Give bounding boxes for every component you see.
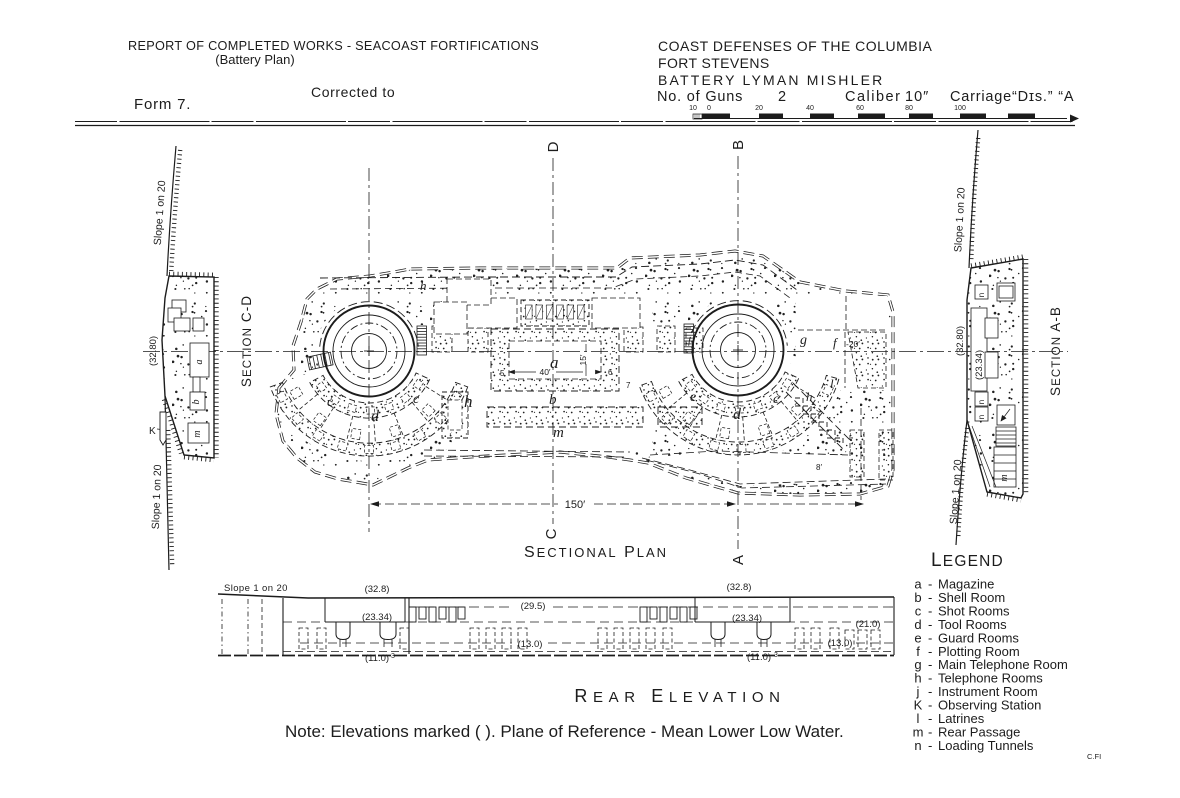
svg-text:l: l (830, 376, 834, 391)
svg-text:b: b (191, 400, 202, 405)
svg-text:-: - (928, 738, 932, 753)
svg-text:c: c (773, 392, 780, 407)
svg-text:(Battery Plan): (Battery Plan) (215, 52, 294, 67)
svg-text:d: d (733, 406, 742, 423)
svg-text:No. of Guns: No. of Guns (657, 89, 743, 105)
svg-text:Loading Tunnels: Loading Tunnels (938, 738, 1034, 753)
svg-text:10: 10 (689, 105, 697, 112)
svg-text:Corrected to: Corrected to (311, 84, 395, 100)
svg-text:n: n (977, 415, 986, 419)
svg-text:(11.0): (11.0) (747, 652, 771, 663)
svg-text:10″: 10″ (905, 89, 929, 105)
svg-text:(23.34): (23.34) (362, 612, 392, 623)
svg-text:-20′: -20′ (846, 339, 860, 349)
svg-text:5: 5 (500, 369, 505, 378)
svg-text:(32.8): (32.8) (727, 582, 752, 593)
svg-text:D: D (545, 141, 562, 152)
svg-text:Slope 1 on 20: Slope 1 on 20 (952, 187, 967, 253)
svg-text:n: n (977, 293, 986, 297)
svg-text:REPORT OF COMPLETED WORKS - SE: REPORT OF COMPLETED WORKS - SEACOAST FOR… (128, 39, 539, 53)
svg-text:6: 6 (608, 368, 613, 377)
svg-text:0: 0 (707, 105, 711, 112)
svg-text:80: 80 (905, 105, 913, 112)
svg-text:K: K (149, 426, 156, 437)
svg-text:SECTION C-D: SECTION C-D (239, 295, 254, 387)
svg-text:150′: 150′ (565, 499, 585, 511)
svg-text:Carriage“Dɪs.” “A: Carriage“Dɪs.” “A (950, 89, 1074, 105)
svg-text:7: 7 (626, 381, 631, 390)
svg-text:2: 2 (778, 89, 786, 105)
svg-text:40: 40 (806, 105, 814, 112)
svg-text:(32.8): (32.8) (365, 584, 390, 595)
svg-text:(21.0): (21.0) (856, 619, 881, 630)
svg-text:m: m (553, 425, 564, 441)
svg-text:a: a (550, 353, 559, 372)
svg-text:REAR ELEVATION: REAR ELEVATION (574, 686, 785, 706)
svg-text:(32.80): (32.80) (148, 336, 159, 366)
svg-text:n: n (914, 738, 921, 753)
svg-text:A: A (730, 555, 747, 565)
svg-text:LEGEND: LEGEND (931, 550, 1004, 571)
svg-text:60: 60 (856, 105, 864, 112)
svg-text:(23.34): (23.34) (974, 350, 985, 380)
svg-text:g: g (800, 333, 807, 348)
svg-text:C.FI: C.FI (1087, 752, 1101, 761)
svg-text:SECTION A-B: SECTION A-B (1048, 306, 1063, 396)
svg-text:n: n (977, 400, 986, 404)
svg-text:FORT STEVENS: FORT STEVENS (658, 55, 770, 71)
svg-text:B: B (730, 140, 747, 150)
svg-text:40′: 40′ (539, 367, 550, 377)
svg-text:(13.0): (13.0) (828, 638, 853, 649)
svg-text:c: c (413, 392, 420, 407)
svg-text:3: 3 (774, 652, 778, 659)
svg-text:(11.0): (11.0) (365, 653, 389, 664)
svg-text:Slope 1 on 20: Slope 1 on 20 (152, 180, 169, 246)
svg-text:COAST DEFENSES OF THE COLUMBIA: COAST DEFENSES OF THE COLUMBIA (658, 38, 932, 54)
svg-text:BATTERY LYMAN MISHLER: BATTERY LYMAN MISHLER (658, 72, 884, 88)
svg-text:3: 3 (391, 653, 395, 660)
svg-text:Caliber: Caliber (845, 89, 901, 105)
svg-text:Slope 1 on 20: Slope 1 on 20 (224, 583, 288, 594)
svg-text:(29.5): (29.5) (521, 601, 546, 612)
svg-text:Note: Elevations marked ( ). P: Note: Elevations marked ( ). Plane of Re… (285, 722, 844, 741)
svg-text:C: C (543, 528, 560, 539)
svg-text:a: a (194, 360, 205, 365)
svg-text:e: e (690, 390, 696, 405)
svg-text:Form 7.: Form 7. (134, 96, 191, 113)
svg-text:m: m (999, 474, 1010, 481)
svg-text:15′: 15′ (578, 354, 588, 365)
svg-text:SECTIONAL PLAN: SECTIONAL PLAN (524, 544, 668, 561)
svg-text:(23.34): (23.34) (732, 613, 762, 624)
svg-text:100: 100 (954, 105, 966, 112)
svg-text:Slope 1 on 20: Slope 1 on 20 (948, 459, 965, 525)
svg-text:c: c (327, 395, 334, 410)
svg-text:Slope 1 on 20: Slope 1 on 20 (150, 464, 164, 529)
svg-text:m: m (192, 430, 203, 437)
svg-text:8′: 8′ (816, 463, 822, 472)
svg-text:d: d (371, 408, 380, 425)
svg-text:h: h (420, 278, 427, 293)
svg-text:(32.80): (32.80) (955, 326, 966, 356)
svg-text:(13.0): (13.0) (518, 639, 543, 650)
svg-text:20: 20 (755, 105, 763, 112)
